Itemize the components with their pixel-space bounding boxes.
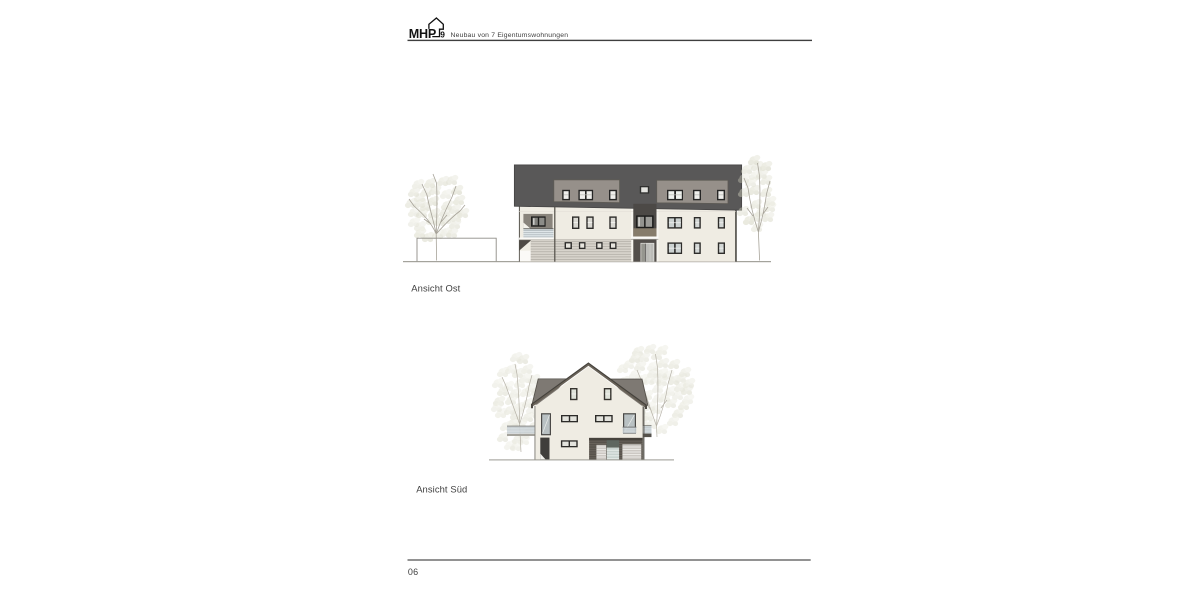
svg-text:9: 9 <box>440 29 445 39</box>
svg-text:Ansicht Süd: Ansicht Süd <box>416 484 467 495</box>
svg-text:MHP: MHP <box>409 27 436 41</box>
svg-text:Ansicht Ost: Ansicht Ost <box>411 283 460 294</box>
svg-text:Neubau von 7 Eigentumswohnunge: Neubau von 7 Eigentumswohnungen <box>451 32 569 39</box>
svg-text:06: 06 <box>408 567 418 577</box>
